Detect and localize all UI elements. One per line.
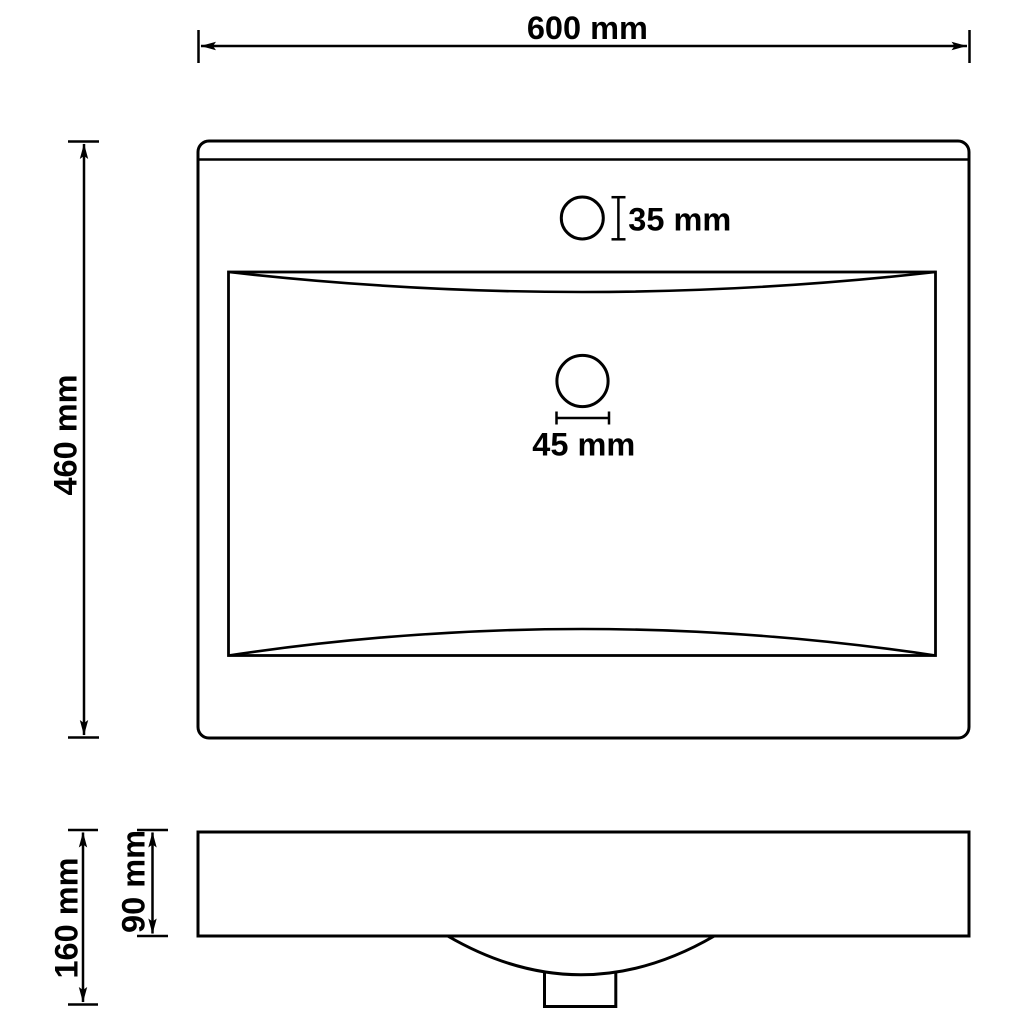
svg-text:45 mm: 45 mm <box>532 427 635 463</box>
svg-text:160 mm: 160 mm <box>49 857 85 978</box>
svg-text:90 mm: 90 mm <box>116 830 152 933</box>
svg-text:600 mm: 600 mm <box>527 10 648 46</box>
svg-text:35 mm: 35 mm <box>628 202 731 238</box>
svg-text:460 mm: 460 mm <box>48 374 84 495</box>
